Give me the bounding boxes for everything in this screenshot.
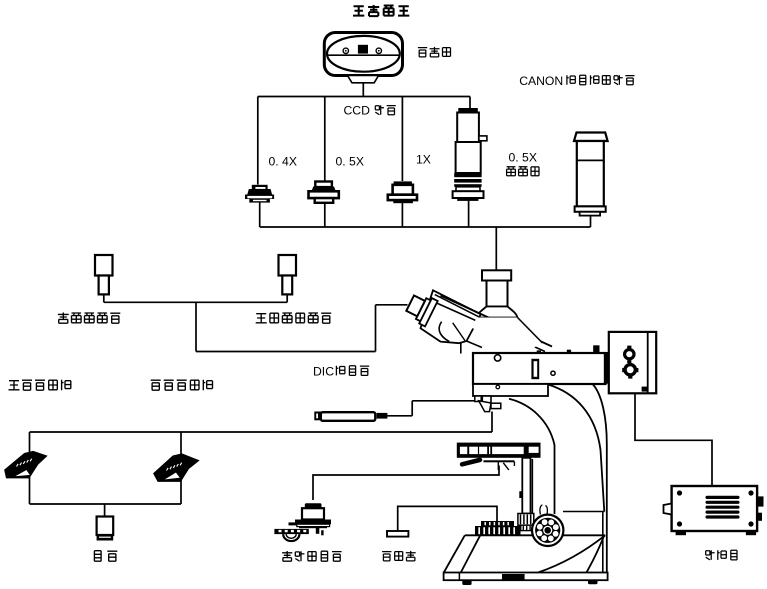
svg-text:1X: 1X	[416, 153, 431, 167]
svg-text:0. 5X: 0. 5X	[509, 151, 537, 165]
svg-text:CCD: CCD	[344, 104, 371, 118]
svg-text:0. 4X: 0. 4X	[269, 155, 297, 169]
svg-text:DIC: DIC	[313, 365, 334, 379]
svg-text:0. 5X: 0. 5X	[336, 155, 364, 169]
svg-text:CANON: CANON	[519, 74, 563, 88]
